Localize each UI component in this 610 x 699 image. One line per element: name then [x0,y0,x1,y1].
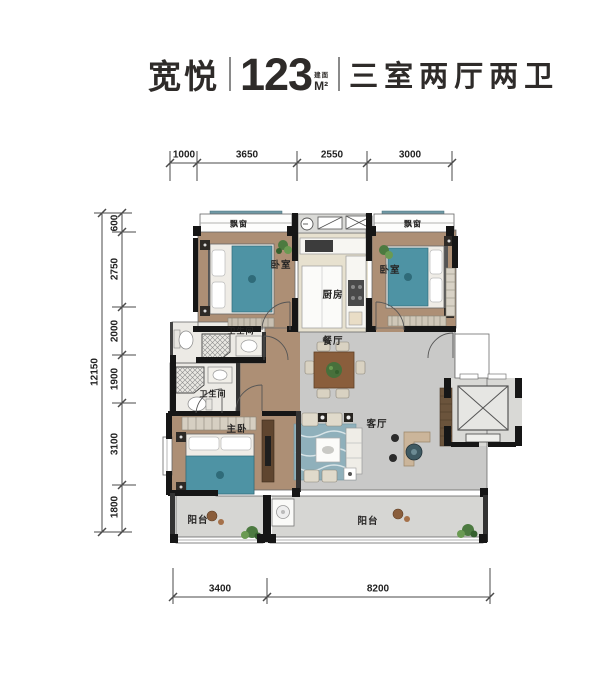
floorplan-drawing [0,0,610,699]
balcony-right-floor [272,495,487,542]
room-label-bedroom-right: 卧室 [379,262,400,276]
elevator-door [466,434,500,442]
armchair [302,413,318,426]
room-label-dining-room: 餐厅 [322,333,343,347]
room-label-bedroom-left: 卧室 [270,257,291,271]
dim-top-3: 3000 [399,150,421,161]
room-label-bay-window-right: 飘窗 [404,219,422,230]
room-label-bathroom-lower: 卫生间 [200,389,227,400]
sofa [346,428,362,474]
stool [389,454,397,462]
dim-top-0: 1000 [173,150,195,161]
room-label-master-bedroom: 主卧 [226,421,247,435]
room-label-kitchen: 厨房 [322,287,343,301]
toilet [179,331,193,349]
dim-bottom-1: 8200 [367,584,389,595]
tv [265,436,271,466]
centerpiece [326,362,342,378]
dim-left-1: 2750 [110,258,121,280]
dim-top-2: 2550 [321,150,343,161]
room-label-balcony-left: 阳台 [187,512,208,526]
wardrobe [446,268,455,316]
dim-bottom-0: 3400 [209,584,231,595]
master-side-window [163,437,172,475]
living-balcony-door [296,490,486,496]
armchair [326,413,342,426]
room-label-living-room: 客厅 [366,416,387,430]
room-label-balcony-right: 阳台 [357,513,378,527]
dim-left-total: 12150 [90,358,101,386]
room-label-bay-window-left: 飘窗 [230,219,248,230]
floorplan-page: 宽悦 123 建面 M² 三室两厅两卫 [0,0,610,699]
balcony-table [393,509,403,519]
kitchen-hood [305,240,333,252]
dim-left-2: 2000 [110,320,121,342]
dresser [388,316,446,326]
entry-landing [455,334,489,378]
stove [348,280,364,306]
dim-left-3: 1900 [110,368,121,390]
room-label-bathroom-upper: 卫生间 [228,326,255,337]
dim-left-5: 1800 [110,496,121,518]
stool [391,434,399,442]
dim-top-1: 3650 [236,150,258,161]
dim-left-0: 600 [110,215,121,232]
dim-left-4: 3100 [110,433,121,455]
